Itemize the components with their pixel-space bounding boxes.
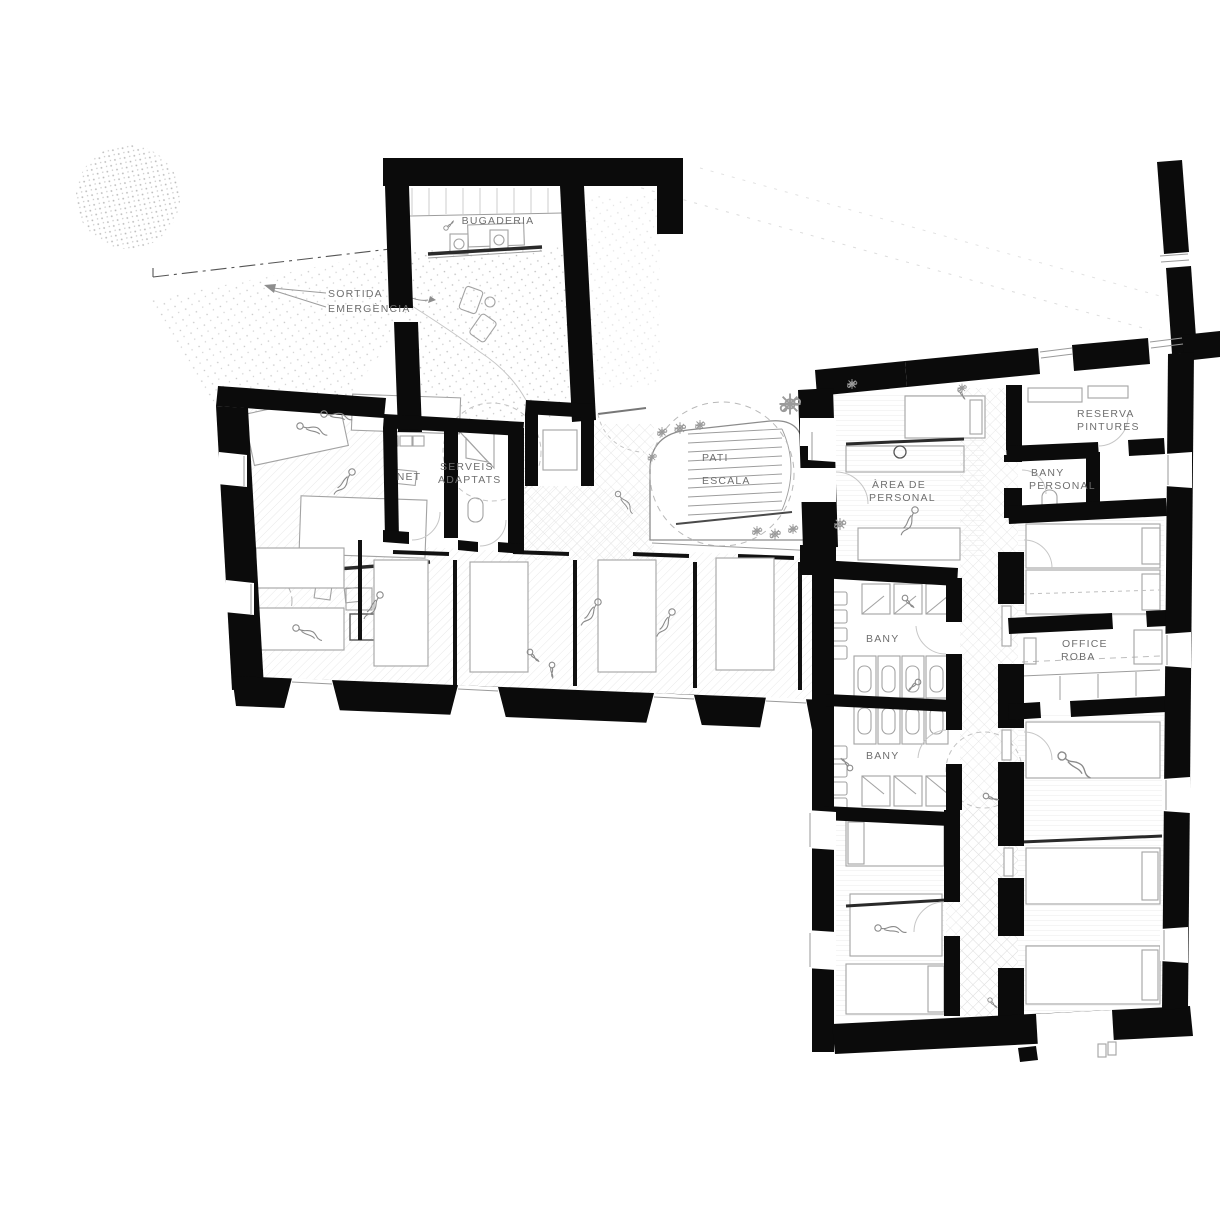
bed [1026, 524, 1160, 568]
label-area-personal-2: PERSONAL [869, 492, 936, 504]
vegetation-dots [76, 145, 180, 249]
bed [1026, 570, 1160, 614]
roof-projection-line [620, 182, 1150, 330]
bench-squares-lower [832, 746, 847, 811]
entrance-door [598, 408, 646, 414]
yard-dots-2 [586, 196, 660, 388]
bed [1026, 946, 1160, 1004]
bed [470, 562, 528, 672]
label-net: NET [397, 471, 422, 483]
label-bugaderia: BUGADERIA [462, 215, 535, 227]
sofa [858, 528, 960, 560]
label-office-roba-2: ROBA [1061, 651, 1096, 663]
shelf [1088, 386, 1128, 398]
label-pati-1: PATI [702, 452, 729, 464]
floor-plan-svg: BUGADERIA SORTIDA EMERGÈNCIA NET SERVEIS… [0, 0, 1220, 1220]
bed [1026, 722, 1160, 778]
label-sortida-1: SORTIDA [328, 288, 383, 300]
bed [598, 560, 656, 672]
label-serveis-1: SERVEIS [440, 461, 494, 473]
washer-2 [490, 230, 508, 250]
label-bany-lower: BANY [866, 750, 899, 762]
label-serveis-2: ADAPTATS [438, 474, 501, 486]
label-bany-upper: BANY [866, 633, 899, 645]
shelf [1028, 388, 1082, 402]
label-area-personal-1: ÀREA DE [872, 478, 926, 491]
label-bany-personal-1: BANY [1031, 467, 1064, 479]
bench-squares-upper [832, 592, 847, 659]
wardrobe [1134, 630, 1162, 664]
shower-stalls-lower [862, 776, 954, 806]
bed [256, 548, 344, 588]
label-sortida-2: EMERGÈNCIA [328, 302, 411, 315]
label-office-roba-1: OFFICE [1062, 638, 1108, 650]
bed [716, 558, 774, 670]
bed [1026, 848, 1160, 904]
label-reserva-1: RESERVA [1077, 408, 1135, 420]
shaft-interior [538, 418, 581, 486]
label-reserva-2: PINTURES [1077, 421, 1140, 433]
roof-projection-line-2 [700, 168, 1160, 296]
bed [252, 608, 344, 650]
bed [846, 820, 944, 866]
label-bany-personal-2: PERSONAL [1029, 480, 1096, 492]
bed [846, 964, 946, 1014]
bed [374, 560, 428, 666]
bed [905, 396, 985, 438]
label-pati-2: ESCALA [702, 475, 751, 487]
floor-plan-page: BUGADERIA SORTIDA EMERGÈNCIA NET SERVEIS… [0, 0, 1220, 1220]
